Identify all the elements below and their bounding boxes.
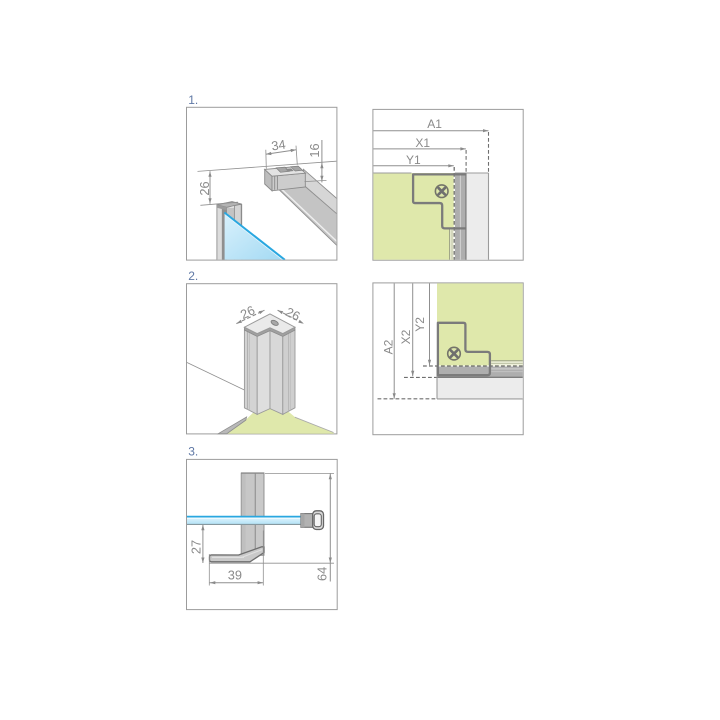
svg-text:Y2: Y2 bbox=[413, 317, 427, 332]
svg-text:16: 16 bbox=[307, 143, 322, 157]
svg-text:39: 39 bbox=[228, 568, 242, 583]
svg-text:64: 64 bbox=[315, 567, 330, 581]
svg-text:3.: 3. bbox=[188, 445, 198, 459]
svg-text:Y1: Y1 bbox=[406, 153, 421, 167]
svg-text:26: 26 bbox=[197, 181, 212, 195]
svg-text:X1: X1 bbox=[415, 136, 430, 150]
svg-text:1.: 1. bbox=[188, 93, 198, 107]
svg-text:27: 27 bbox=[189, 540, 204, 554]
svg-text:2.: 2. bbox=[188, 269, 198, 283]
svg-text:A2: A2 bbox=[382, 339, 396, 354]
svg-text:X2: X2 bbox=[399, 329, 413, 344]
svg-text:A1: A1 bbox=[427, 117, 442, 131]
svg-text:34: 34 bbox=[270, 137, 286, 154]
